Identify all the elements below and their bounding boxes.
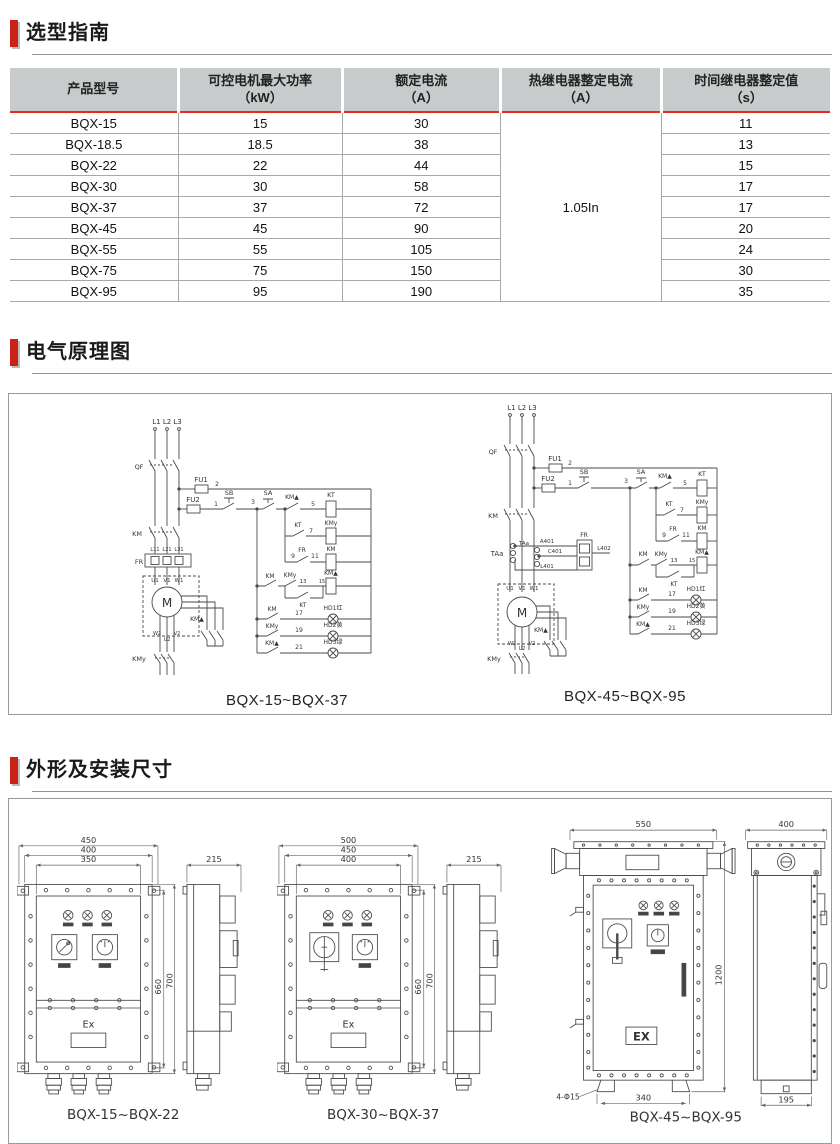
section-title-dimensions: 外形及安装尺寸	[26, 756, 832, 784]
schematic-label: 9	[662, 532, 666, 539]
table-row: BQX-959519035	[10, 281, 830, 302]
schematic-label: SA	[637, 468, 646, 476]
schematic-label: L1 L2 L3	[507, 404, 537, 412]
table-row: BQX-22224415	[10, 155, 830, 176]
schematic-label: L401	[540, 564, 554, 570]
schematic-label: KM	[265, 573, 274, 580]
outline-drawing-bqx15-22: 450 400 350 660 700 215 Ex BQX-15~BQX-22	[17, 829, 263, 1131]
outline-drawing-bqx45-95: 550 1200 340 4-Φ15 400 195 EX BQX-45~BQX…	[541, 813, 831, 1133]
schematic-label: KM▲	[658, 473, 672, 480]
dim-label: 450	[341, 845, 357, 855]
col-header-current: 额定电流（A）	[342, 68, 500, 112]
lamp-label: HD3绿	[687, 619, 706, 627]
schematic-label: KT	[299, 602, 306, 609]
cell-power: 30	[178, 176, 342, 197]
schematic-label: 3	[251, 499, 255, 506]
section-underline	[32, 791, 832, 792]
schematic-label: 19	[668, 608, 676, 615]
cell-model: BQX-75	[10, 260, 178, 281]
schematic-label: TAa	[490, 550, 504, 558]
dim-label: 660	[413, 979, 423, 995]
schematic-label: 13	[300, 579, 307, 585]
schematic-label: FU2	[186, 496, 200, 504]
cell-current: 44	[342, 155, 500, 176]
dimension-panel: 450 400 350 660 700 215 Ex BQX-15~BQX-22	[8, 798, 832, 1144]
table-header-row: 产品型号 可控电机最大功率（kW） 额定电流（A） 热继电器整定电流（A） 时间…	[10, 68, 830, 112]
cell-power: 45	[178, 218, 342, 239]
schematic-label: L1 L2 L3	[152, 418, 182, 426]
schematic-label: SB	[225, 489, 234, 497]
schematic-label: KT	[698, 470, 706, 478]
schematic-label: U1	[151, 578, 159, 584]
outline-drawing-bqx30-37: 500 450 400 660 700 215 Ex BQX-30~BQX-37	[277, 829, 523, 1131]
cell-thermal-merged: 1.05In	[500, 112, 661, 302]
schematic-drawing-large: L1 L2 L3 QF KM TAa TAa A401 C401 L401 FR…	[465, 400, 785, 686]
cell-time: 13	[661, 134, 830, 155]
schematic-label: KM	[488, 512, 498, 520]
schematic-label: 11	[311, 553, 319, 560]
schematic-label: KT	[670, 581, 677, 588]
selection-table: 产品型号 可控电机最大功率（kW） 额定电流（A） 热继电器整定电流（A） 时间…	[10, 68, 830, 302]
cable-glands	[46, 1074, 112, 1094]
schematic-label: U1	[506, 586, 514, 592]
cell-model: BQX-30	[10, 176, 178, 197]
schematic-label: W2	[508, 641, 516, 647]
schematic-label: KM	[638, 551, 647, 558]
cell-time: 20	[661, 218, 830, 239]
schematic-label: FR	[580, 532, 588, 539]
schematic-label: KMy	[696, 499, 709, 506]
dim-label: 350	[81, 854, 97, 864]
schematic-label: 21	[668, 625, 676, 632]
schematic-label: V2	[174, 631, 181, 637]
schematic-label: KM	[697, 525, 706, 532]
schematic-figure-right: L1 L2 L3 QF KM TAa TAa A401 C401 L401 FR…	[465, 400, 785, 705]
schematic-label: L21	[162, 547, 171, 553]
schematic-label: KM▲	[324, 570, 338, 577]
schematic-label: 5	[683, 480, 687, 487]
schematic-label: KM	[326, 546, 335, 553]
schematic-label: V1	[518, 586, 525, 592]
schematic-label: 3	[624, 478, 628, 485]
dim-label: 500	[341, 835, 357, 845]
lamp-label: HD2黄	[687, 602, 706, 610]
cell-power: 95	[178, 281, 342, 302]
schematic-label: QF	[489, 448, 498, 456]
schematic-label: KMy	[655, 551, 668, 558]
schematic-label: 17	[668, 591, 676, 598]
section-header-dimensions: 外形及安装尺寸	[10, 747, 832, 790]
schematic-label: FU1	[194, 476, 208, 484]
cell-time: 35	[661, 281, 830, 302]
dim-label: 660	[153, 979, 163, 995]
schematic-label: KMy	[637, 604, 650, 611]
ex-mark: EX	[633, 1030, 650, 1044]
cell-model: BQX-18.5	[10, 134, 178, 155]
dim-label: 1200	[714, 965, 724, 986]
schematic-label: KMy	[284, 572, 297, 579]
cell-time: 17	[661, 197, 830, 218]
schematic-label: FU2	[541, 475, 555, 483]
schematic-label: FR	[298, 547, 306, 554]
cell-time: 15	[661, 155, 830, 176]
lamp-label: HD3绿	[324, 638, 343, 646]
cell-current: 72	[342, 197, 500, 218]
cell-power: 18.5	[178, 134, 342, 155]
red-accent-bar	[10, 20, 18, 47]
schematic-label: W2	[153, 631, 161, 637]
table-row: BQX-757515030	[10, 260, 830, 281]
col-header-thermal: 热继电器整定电流（A）	[500, 68, 661, 112]
schematic-label: KM	[638, 587, 647, 594]
ex-mark: Ex	[343, 1019, 355, 1030]
table-row: BQX-30305817	[10, 176, 830, 197]
schematic-label: 15	[319, 579, 325, 585]
motor-label: M	[517, 606, 527, 620]
schematic-label: KT	[294, 522, 301, 529]
lamp-label: HD1红	[324, 604, 343, 612]
schematic-label: 15	[689, 558, 695, 564]
cell-model: BQX-22	[10, 155, 178, 176]
schematic-label: L11	[150, 547, 159, 553]
schematic-label: KM▲	[285, 494, 299, 501]
schematic-label: W1	[530, 586, 539, 592]
dim-label: 550	[636, 819, 652, 829]
section-title-guide: 选型指南	[26, 19, 832, 47]
table-row: BQX-18.518.53813	[10, 134, 830, 155]
cell-time: 17	[661, 176, 830, 197]
drawing-caption: BQX-30~BQX-37	[327, 1107, 439, 1123]
cell-time: 11	[661, 112, 830, 134]
schematic-label: 9	[291, 553, 295, 560]
dim-label: 400	[779, 819, 795, 829]
cell-power: 37	[178, 197, 342, 218]
red-accent-bar	[10, 339, 18, 366]
dim-label: 700	[425, 973, 435, 989]
section-header-guide: 选型指南	[10, 10, 832, 53]
cell-power: 15	[178, 112, 342, 134]
table-row: BQX-37377217	[10, 197, 830, 218]
schematic-label: L31	[174, 547, 183, 553]
schematic-label: 21	[295, 644, 303, 651]
schematic-panel: L1 L2 L3 QF KM FR L11 L21 L31 U1 V1 W1 M…	[8, 393, 832, 715]
table-row: BQX-15 15 30 1.05In 11	[10, 112, 830, 134]
schematic-label: U2	[164, 637, 171, 643]
schematic-label: A401	[540, 539, 554, 545]
red-accent-bar	[10, 757, 18, 784]
schematic-label: SA	[264, 489, 273, 497]
dim-label: 400	[81, 845, 97, 855]
cell-current: 90	[342, 218, 500, 239]
cell-time: 24	[661, 239, 830, 260]
dim-label: 215	[466, 854, 482, 864]
cell-power: 22	[178, 155, 342, 176]
lamp-label: HD1红	[687, 585, 706, 593]
schematic-label: V1	[163, 578, 170, 584]
ex-mark: Ex	[83, 1019, 95, 1030]
table-row: BQX-555510524	[10, 239, 830, 260]
schematic-label: 5	[311, 501, 315, 508]
cell-model: BQX-37	[10, 197, 178, 218]
dim-label: 700	[164, 973, 174, 989]
schematic-label: KM▲	[695, 549, 709, 556]
schematic-label: KM	[267, 606, 276, 613]
schematic-figure-left: L1 L2 L3 QF KM FR L11 L21 L31 U1 V1 W1 M…	[127, 414, 447, 709]
cell-current: 190	[342, 281, 500, 302]
schematic-label: L402	[597, 546, 611, 552]
section-underline	[32, 373, 832, 374]
schematic-label: KMy	[325, 520, 338, 527]
section-underline	[32, 54, 832, 55]
motor-label: M	[162, 596, 172, 610]
schematic-label: 1	[214, 501, 218, 508]
dim-label: 215	[206, 854, 222, 864]
cell-current: 105	[342, 239, 500, 260]
schematic-label: TAa	[518, 541, 529, 547]
drawing-caption: BQX-45~BQX-95	[630, 1110, 742, 1126]
cell-model: BQX-55	[10, 239, 178, 260]
schematic-label: SB	[580, 468, 589, 476]
schematic-label: FR	[669, 526, 677, 533]
cell-current: 30	[342, 112, 500, 134]
cell-time: 30	[661, 260, 830, 281]
dim-label: 4-Φ15	[557, 1092, 581, 1101]
dim-label: 450	[81, 835, 97, 845]
cell-current: 58	[342, 176, 500, 197]
schematic-label: 13	[671, 558, 678, 564]
cell-model: BQX-95	[10, 281, 178, 302]
dim-label: 340	[636, 1092, 652, 1102]
schematic-label: 19	[295, 627, 303, 634]
table-row: BQX-45459020	[10, 218, 830, 239]
schematic-label: W1	[175, 578, 184, 584]
schematic-label: KMy	[132, 655, 146, 663]
lamp-label: HD2黄	[324, 621, 343, 629]
schematic-label: KMy	[487, 655, 501, 663]
schematic-caption-left: BQX-15~BQX-37	[226, 692, 348, 709]
schematic-label: 2	[215, 481, 219, 488]
col-header-model: 产品型号	[10, 68, 178, 112]
drawing-caption: BQX-15~BQX-22	[67, 1107, 179, 1123]
schematic-label: QF	[135, 463, 144, 471]
cell-power: 75	[178, 260, 342, 281]
cell-power: 55	[178, 239, 342, 260]
schematic-label: KM▲	[265, 640, 279, 647]
col-header-power: 可控电机最大功率（kW）	[178, 68, 342, 112]
schematic-label: 7	[680, 507, 684, 514]
cable-glands	[306, 1074, 372, 1094]
schematic-label: 1	[568, 480, 572, 487]
schematic-label: FR	[135, 558, 144, 566]
schematic-label: U2	[519, 646, 526, 652]
section-header-schematic: 电气原理图	[10, 329, 832, 372]
schematic-drawing-small: L1 L2 L3 QF KM FR L11 L21 L31 U1 V1 W1 M…	[127, 414, 447, 690]
cell-model: BQX-45	[10, 218, 178, 239]
schematic-label: 11	[682, 532, 690, 539]
schematic-label: KT	[327, 491, 335, 499]
section-title-schematic: 电气原理图	[26, 338, 832, 366]
dim-label: 195	[779, 1094, 795, 1104]
schematic-label: KT	[665, 501, 672, 508]
schematic-label: KM▲	[534, 627, 548, 634]
schematic-caption-right: BQX-45~BQX-95	[564, 688, 686, 705]
schematic-label: KM	[132, 530, 142, 538]
cell-model: BQX-15	[10, 112, 178, 134]
schematic-label: V2	[529, 641, 536, 647]
cell-current: 150	[342, 260, 500, 281]
schematic-label: KMy	[266, 623, 279, 630]
schematic-label: KM▲	[636, 621, 650, 628]
cell-current: 38	[342, 134, 500, 155]
schematic-label: KM▲	[190, 616, 204, 623]
schematic-label: C401	[548, 549, 562, 555]
col-header-time: 时间继电器整定值（s）	[661, 68, 830, 112]
schematic-label: 7	[309, 528, 313, 535]
dim-label: 400	[341, 854, 357, 864]
schematic-label: 2	[568, 460, 572, 467]
schematic-label: 17	[295, 610, 303, 617]
schematic-label: FU1	[548, 455, 562, 463]
